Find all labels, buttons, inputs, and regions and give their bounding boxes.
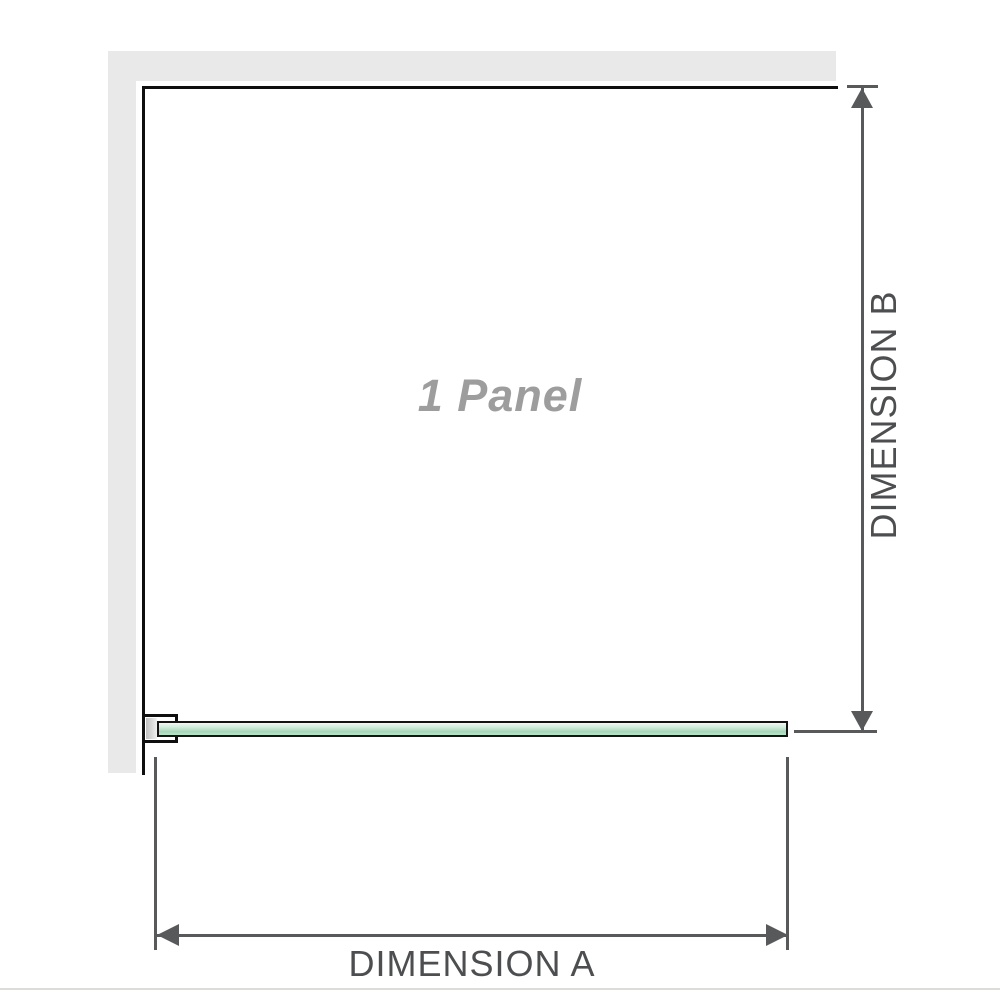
dimension-a-line <box>157 934 788 937</box>
shower-panel-diagram: 1 Panel DIMENSION B DIMENSION A <box>0 0 1000 1000</box>
image-bottom-rule <box>0 988 1000 990</box>
dimension-a-label: DIMENSION A <box>348 943 595 985</box>
screen-outline-top-border <box>142 86 838 89</box>
dimension-a-extension-left <box>154 757 157 950</box>
glass-panel <box>157 721 788 737</box>
panel-count-label: 1 Panel <box>418 370 583 422</box>
arrow-up-icon <box>851 88 873 108</box>
bracket-wall-insert <box>146 718 157 739</box>
arrow-right-icon <box>766 924 788 946</box>
wall-section-top <box>108 51 836 81</box>
arrow-left-icon <box>157 924 179 946</box>
screen-outline-left-border <box>142 86 145 775</box>
arrow-down-icon <box>851 711 873 731</box>
dimension-b-label: DIMENSION B <box>863 290 905 539</box>
wall-section-left <box>108 51 136 773</box>
dimension-a-extension-right <box>786 757 789 950</box>
